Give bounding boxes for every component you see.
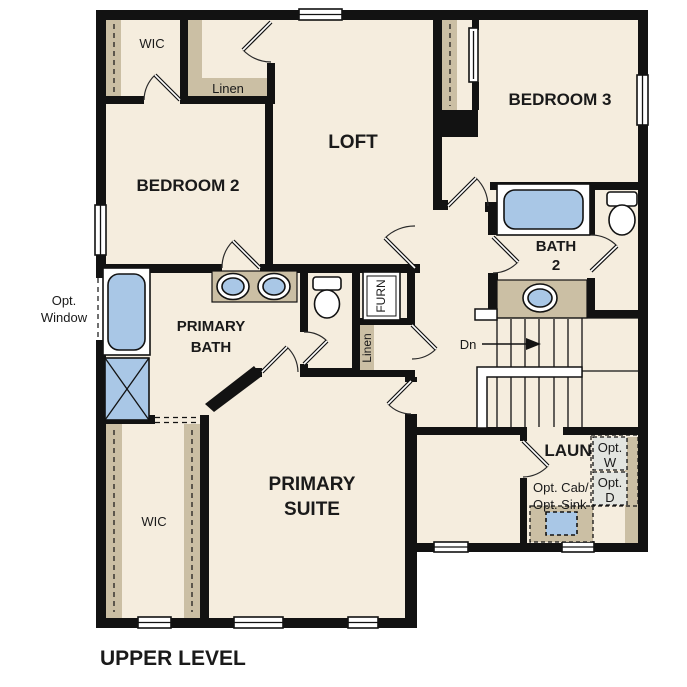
loft-label: LOFT <box>328 132 378 153</box>
linen-top-label: Linen <box>212 81 244 96</box>
stair-newel <box>475 309 497 320</box>
bedroom2-label: BEDROOM 2 <box>137 176 240 195</box>
bath2-toilet <box>607 192 637 235</box>
primary-bath-shower <box>105 358 149 420</box>
down-label: Dn <box>460 337 477 352</box>
opt-cab-label: Opt. Cab/ <box>533 480 589 495</box>
floor-plan-canvas: WIC Linen LOFT BEDROOM 2 BEDROOM 3 BATH … <box>0 0 687 687</box>
bath2-label-line1: BATH <box>536 238 577 255</box>
window-bedroom3-right <box>637 75 648 125</box>
primary-suite-label-line1: PRIMARY <box>269 474 356 495</box>
furnace-label: FURN <box>374 279 388 312</box>
window-suite-bottom-1 <box>234 617 283 628</box>
opt-washer-label-line2: W <box>604 455 617 470</box>
wic-primary-label: WIC <box>141 514 166 529</box>
opt-washer-label-line1: Opt. <box>598 440 623 455</box>
opt-dryer-label-line1: Opt. <box>598 475 623 490</box>
laundry-label: LAUN <box>544 441 591 460</box>
primary-bath-toilet <box>313 277 341 318</box>
bath2-vanity <box>497 280 587 318</box>
opt-window-label-line2: Window <box>41 310 88 325</box>
primary-bath-tub <box>103 268 150 355</box>
window-laundry-bottom <box>562 542 594 552</box>
bedroom3-closet-slider <box>469 28 478 82</box>
bath2-tub <box>497 184 590 235</box>
window-hall-bottom <box>434 542 468 552</box>
primary-suite-label-line2: SUITE <box>284 499 340 520</box>
wic-top-label: WIC <box>139 36 164 51</box>
primary-bath-label-line1: PRIMARY <box>177 318 246 335</box>
plan-title: UPPER LEVEL <box>100 647 246 670</box>
bedroom3-label: BEDROOM 3 <box>509 90 612 109</box>
floor-plan-drawing: WIC Linen LOFT BEDROOM 2 BEDROOM 3 BATH … <box>0 0 687 687</box>
bath2-label-line2: 2 <box>552 257 560 274</box>
window-top <box>299 9 342 20</box>
window-bedroom2-left <box>95 205 106 255</box>
opt-window-label-line1: Opt. <box>52 293 77 308</box>
primary-bath-vanity <box>212 271 297 302</box>
primary-bath-label-line2: BATH <box>191 339 232 356</box>
opt-dryer-label-line2: D <box>605 490 614 505</box>
opt-sink-label: Opt. Sink <box>533 497 587 512</box>
window-suite-bottom-2 <box>348 617 378 628</box>
window-wic-bottom <box>138 617 171 628</box>
linen-mid-label: Linen <box>360 333 374 362</box>
